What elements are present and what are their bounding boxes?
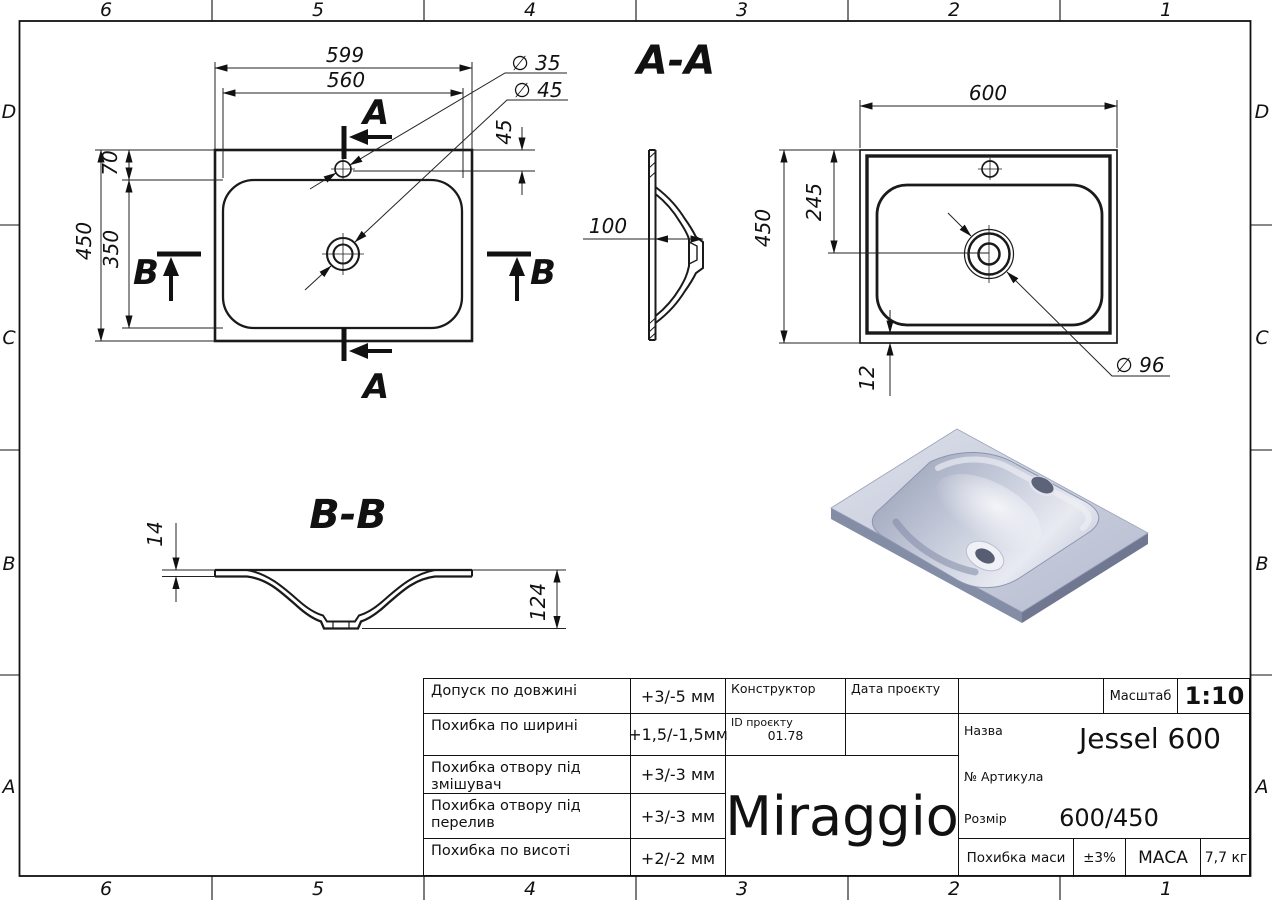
section-bb-texts: B-B 14 124 <box>143 492 550 621</box>
dim-dia96: ∅ 96 <box>1115 353 1164 377</box>
section-letter-b-right: B <box>530 253 556 293</box>
mass-label: МАСА <box>1126 839 1200 877</box>
dim-560: 560 <box>327 68 365 92</box>
dim-14: 14 <box>143 521 167 546</box>
dim-12: 12 <box>855 365 879 390</box>
dim-124: 124 <box>526 583 550 621</box>
tolerance-value: +3/-3 мм <box>631 756 725 793</box>
zone-row-right: C <box>1255 327 1269 349</box>
article-label: № Артикула <box>959 767 1079 787</box>
zone-col-top: 1 <box>1160 0 1172 21</box>
constructor-label: Конструктор <box>726 679 845 713</box>
project-id-value: 01.78 <box>726 728 845 754</box>
section-letter-a-top: A <box>360 93 389 133</box>
tolerance-value: +3/-3 мм <box>631 794 725 838</box>
section-aa-linework <box>649 150 703 340</box>
dim-245: 245 <box>802 183 826 221</box>
date-label: Дата проєкту <box>846 679 958 713</box>
name-label: Назва <box>959 721 1049 741</box>
sink-3d-render <box>831 429 1148 623</box>
tolerance-label: Похибка отвору під перелив <box>424 794 630 838</box>
tolerance-value: +3/-5 мм <box>631 679 725 713</box>
dim-600: 600 <box>969 81 1007 105</box>
dim-dia45: ∅ 45 <box>513 78 562 102</box>
name-value: Jessel 600 <box>1049 722 1251 756</box>
section-aa-title: A-A <box>634 38 716 84</box>
dim-dia35: ∅ 35 <box>511 51 560 75</box>
zone-col-bottom: 3 <box>736 878 748 900</box>
zone-col-bottom: 2 <box>948 878 960 900</box>
tolerance-label: Допуск по довжині <box>424 679 630 713</box>
dim-45: 45 <box>492 119 516 144</box>
zone-col-bottom: 6 <box>100 878 112 900</box>
dim-350: 350 <box>99 230 123 268</box>
section-bb-title: B-B <box>309 492 387 538</box>
zone-row-left: D <box>2 101 17 123</box>
dim-450: 450 <box>72 222 96 260</box>
zone-col-bottom: 5 <box>312 878 324 900</box>
project-id-label: ID проєкту <box>726 714 845 728</box>
dim-70: 70 <box>98 150 122 175</box>
plan-view-texts: 599 560 450 350 70 45 ∅ 35 ∅ 45 A A B B <box>72 43 563 407</box>
mass-value: 7,7 кг <box>1201 839 1251 877</box>
section-bb-linework <box>215 570 472 629</box>
scale-value: 1:10 <box>1178 679 1251 713</box>
drawing-sheet: { "zones": { "cols": ["6","5","4","3","2… <box>0 0 1272 900</box>
bottom-view-linework <box>860 150 1117 343</box>
tolerance-value: +2/-2 мм <box>631 839 725 877</box>
zone-row-right: B <box>1255 553 1268 575</box>
title-block: Допуск по довжині +3/-5 мм Похибка по ши… <box>423 678 1250 876</box>
plan-view-linework <box>215 150 472 341</box>
zone-row-right: A <box>1254 776 1269 798</box>
section-letter-a-bottom: A <box>360 367 389 407</box>
dim-599: 599 <box>326 43 364 67</box>
brand-logo: Miraggio <box>726 756 958 877</box>
tolerance-label: Похибка по висоті <box>424 839 630 877</box>
dim-450-right: 450 <box>751 209 775 247</box>
zone-col-top: 5 <box>312 0 324 21</box>
zone-col-bottom: 4 <box>524 878 536 900</box>
zone-col-bottom: 1 <box>1160 878 1172 900</box>
dim-100: 100 <box>589 214 627 238</box>
tolerance-label: Похибка отвору під змішувач <box>424 756 630 793</box>
plan-view-dimensions <box>95 62 568 341</box>
scale-label: Масштаб <box>1104 679 1177 713</box>
zone-col-top: 3 <box>736 0 748 21</box>
size-value: 600/450 <box>1029 804 1189 834</box>
tolerance-label: Похибка по ширині <box>424 714 630 755</box>
section-letter-b-left: B <box>133 253 159 293</box>
mass-tolerance-label: Похибка маси <box>959 839 1073 877</box>
zone-row-left: B <box>2 553 15 575</box>
zone-row-right: D <box>1255 101 1270 123</box>
zone-row-left: A <box>1 776 16 798</box>
tolerance-value: +1,5/-1,5мм <box>631 714 725 755</box>
zone-col-top: 6 <box>100 0 112 21</box>
zone-row-left: C <box>2 327 16 349</box>
mass-tolerance-value: ±3% <box>1074 839 1125 877</box>
zone-col-top: 2 <box>948 0 960 21</box>
section-aa-texts: A-A 100 <box>589 38 715 238</box>
zone-col-top: 4 <box>524 0 536 21</box>
